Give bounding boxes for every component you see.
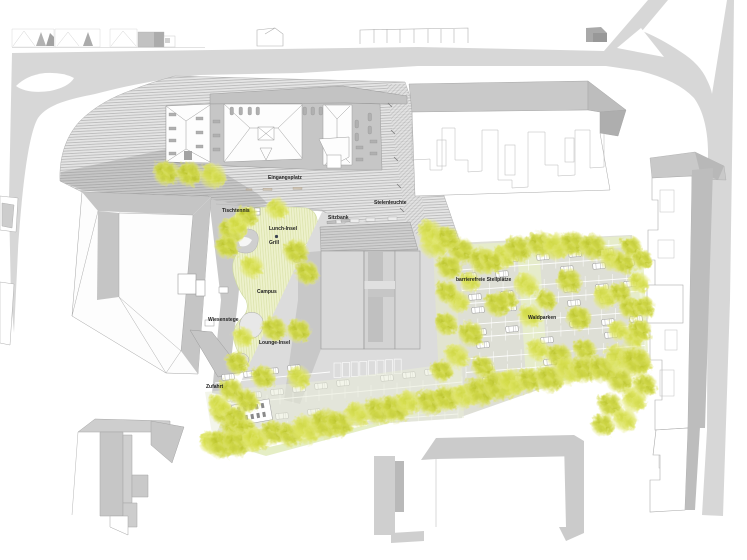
svg-text:Sitzbank: Sitzbank	[328, 215, 349, 221]
svg-text:Lunch-Insel: Lunch-Insel	[269, 226, 298, 232]
svg-text:Tischtennis: Tischtennis	[222, 208, 250, 214]
svg-text:Stelenleuchte: Stelenleuchte	[374, 200, 407, 206]
svg-text:Zufahrt: Zufahrt	[206, 384, 224, 390]
svg-text:barrierefreie Stellplätze: barrierefreie Stellplätze	[456, 277, 512, 283]
svg-text:Wiesenstege: Wiesenstege	[208, 317, 239, 323]
svg-text:Waldparken: Waldparken	[528, 315, 556, 321]
svg-text:Lounge-Insel: Lounge-Insel	[259, 340, 291, 346]
svg-text:Eingangsplatz: Eingangsplatz	[268, 175, 302, 181]
svg-text:Grill: Grill	[269, 240, 280, 246]
svg-text:Campus: Campus	[257, 289, 277, 295]
